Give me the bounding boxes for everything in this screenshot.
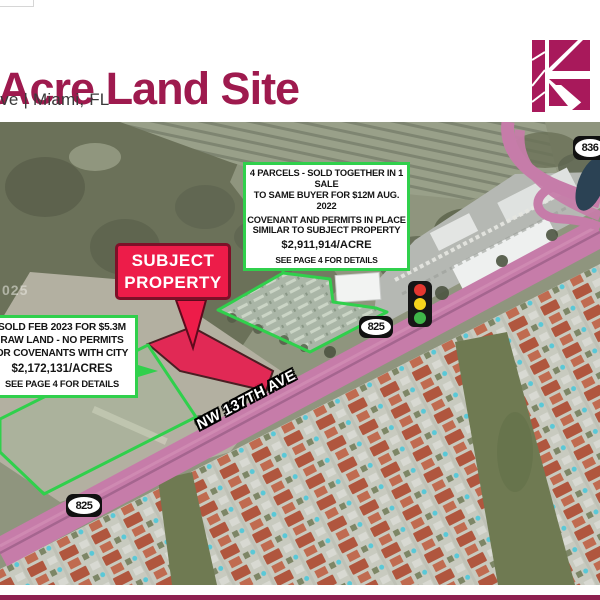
subject-property-label: SUBJECT PROPERTY	[115, 243, 231, 300]
callout-price: $2,911,914/ACRE	[247, 238, 406, 253]
keyes-k-logo-icon	[532, 40, 590, 112]
callout-line: 4 PARCELS - SOLD TOGETHER IN 1 SALE	[247, 168, 406, 190]
slide-footer-bar	[0, 595, 600, 600]
subject-line2: PROPERTY	[118, 272, 228, 293]
subject-line1: SUBJECT	[118, 250, 228, 271]
slide-corner-artifact	[0, 0, 34, 7]
route-shield-825-lower: 825	[66, 494, 102, 517]
callout-line: SIMILAR TO SUBJECT PROPERTY	[247, 225, 406, 236]
callout-footer: SEE PAGE 4 FOR DETAILS	[0, 379, 134, 391]
callout-line: OR COVENANTS WITH CITY	[0, 348, 134, 361]
callout-footer: SEE PAGE 4 FOR DETAILS	[247, 255, 406, 266]
shield-number: 825	[368, 321, 385, 333]
callout-line: COVENANT AND PERMITS IN PLACE	[247, 215, 406, 226]
page-subtitle: Ave | Miami, FL	[0, 90, 109, 110]
route-shield-825-upper: 825	[359, 316, 393, 338]
callout-line: SOLD FEB 2023 FOR $5.3M	[0, 322, 134, 335]
shield-number: 836	[582, 142, 599, 154]
green-light	[414, 312, 426, 324]
shield-number: 825	[76, 500, 93, 512]
slide: { "header": { "title": "Acre Land Site",…	[0, 0, 600, 600]
aerial-map: 025 SUBJECT PROPERTY 4 PARCELS - SOLD TO…	[0, 122, 600, 585]
callout-line: RAW LAND - NO PERMITS	[0, 335, 134, 348]
callout-4-parcels: 4 PARCELS - SOLD TOGETHER IN 1 SALE TO S…	[243, 162, 410, 271]
yellow-light	[414, 298, 426, 310]
callout-line: TO SAME BUYER FOR $12M AUG. 2022	[247, 190, 406, 212]
callout-sold-comp: SOLD FEB 2023 FOR $5.3M RAW LAND - NO PE…	[0, 315, 138, 398]
imagery-watermark: 025	[2, 282, 28, 298]
route-shield-836: 836	[573, 136, 600, 160]
traffic-light-icon	[408, 281, 432, 327]
callout-price: $2,172,131/ACRES	[0, 362, 134, 377]
red-light	[414, 284, 426, 296]
